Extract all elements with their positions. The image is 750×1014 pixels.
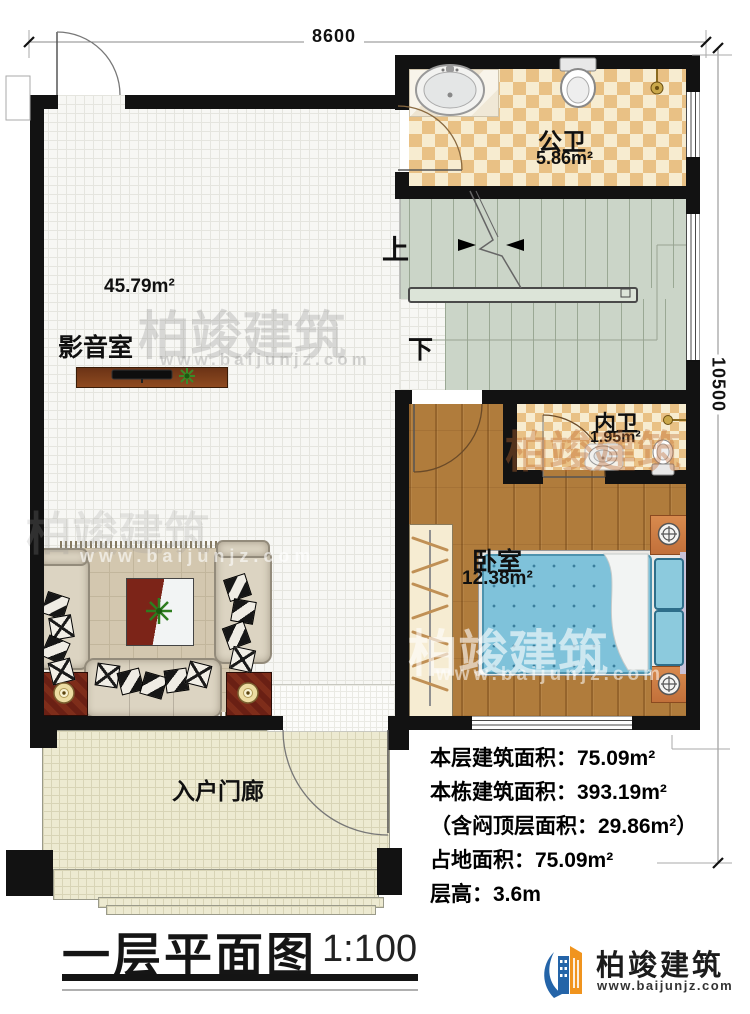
wardrobe-hangers [413,530,447,706]
porch-label: 入户门廊 [172,772,264,806]
media-room-area: 45.79m² [104,276,175,298]
inner-sink-icon [585,444,623,470]
stairs-detail [400,191,686,340]
dimension-height: 10500 [708,355,729,415]
title-underline-thin [62,989,418,991]
media-room-label: 影音室 [58,328,133,364]
stat-line: 层高：3.6m [430,878,697,912]
stats-block: 本层建筑面积：75.09m² 本栋建筑面积：393.19m² （含闷顶层面积：2… [430,742,697,912]
door-bedroom [414,404,482,472]
stairs-down-label: 下 [408,330,433,366]
bed-blanket [604,554,648,670]
inner-toilet-icon [652,440,674,475]
tv-icon [112,370,172,383]
title-scale: 1:100 [322,928,417,971]
bedroom-area: 12.38m² [462,568,533,590]
stat-line: （含闷顶层面积：29.86m²） [430,810,697,844]
brand-block: 柏竣建筑 www.baijunjz.com [538,938,738,1004]
public-bath-area: 5.86m² [536,148,593,169]
brand-logo-icon [538,940,590,1000]
stat-line: 占地面积：75.09m² [430,844,697,878]
break-arrow-left [458,239,476,251]
toilet-icon [560,58,596,107]
stairs-up-label: 上 [382,228,409,267]
plant-icon [146,598,172,624]
stat-line: 本栋建筑面积：393.19m² [430,776,697,810]
break-arrow-right [506,239,524,251]
door-entrance [283,730,388,835]
title-underline [62,974,418,981]
plant-icon [179,368,195,384]
inner-bath-area: 1.95m² [590,429,641,447]
shower-icon [651,69,663,94]
lamp-icon [54,683,74,703]
floor-plan-canvas: 45.79m² 影音室 公卫 5.86m² 内卫 1.95m² 卧室 12.38… [0,0,750,1014]
stat-line: 本层建筑面积：75.09m² [430,742,697,776]
lamp-icon [238,683,258,703]
exterior-pad [6,76,30,120]
sink-icon [416,65,484,115]
inner-shower-icon [664,416,687,425]
door-top-left [57,32,120,95]
brand-website: www.baijunjz.com [597,978,733,993]
dimension-width: 8600 [304,26,364,47]
nightstand-decor [659,524,680,695]
